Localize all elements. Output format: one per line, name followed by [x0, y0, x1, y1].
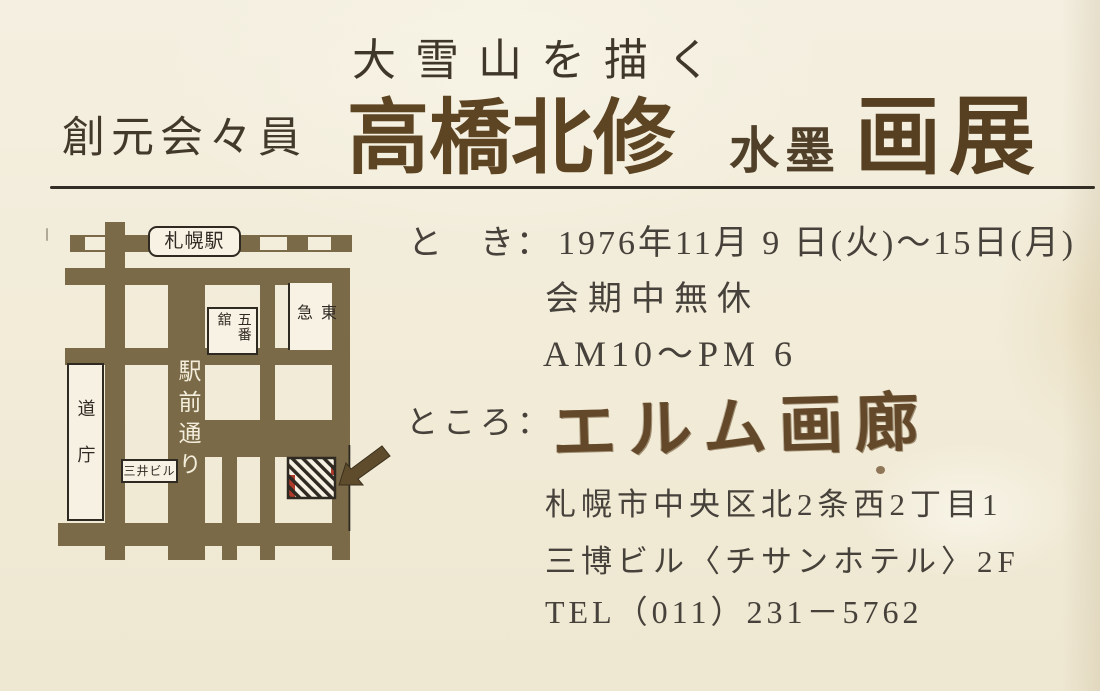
pref-office-label: 道庁 [73, 399, 99, 491]
exhibition-subtitle: 大雪山を描く [352, 24, 730, 88]
venue-address-line1: 札幌市中央区北2条西2丁目1 [545, 479, 1003, 524]
schedule-dates: 1976年11月 9 日(火)～15日(月) [558, 225, 1076, 262]
gallery-name-calligraphy: エルム画廊 [551, 371, 932, 474]
venue-phone: TEL（011）231－5762 [545, 587, 922, 633]
ekimae-street: 駅前通り [169, 359, 205, 499]
map-drawing [55, 213, 400, 563]
pref-office-building: 道庁 [67, 363, 104, 521]
station-label-box: 札幌駅 [148, 226, 241, 257]
tokyu-building: 東急 [288, 283, 332, 350]
medium-label: 水墨 [729, 126, 841, 176]
mitsui-building-label: 三井ビル [123, 464, 175, 478]
gobankan-building-label: 五番舘 [212, 312, 253, 346]
schedule-label: と き： [408, 225, 552, 262]
title-divider [50, 186, 1095, 189]
artist-name: 高橋北修 [347, 98, 675, 180]
station-label: 札幌駅 [164, 231, 224, 252]
schedule-hours: AM10～PM 6 [543, 325, 797, 377]
gallery-location-marker [288, 458, 335, 498]
artist-affiliation: 創元会々員 [62, 117, 307, 160]
tokyu-building-label: 東急 [290, 289, 338, 350]
exhibition-type: 画展 [855, 94, 1043, 180]
title-row: 創元会々員 高橋北修 水墨 画展 [62, 82, 1043, 180]
ekimae-street-label: 駅前通り [170, 359, 204, 483]
venue-label: ところ： [406, 397, 554, 443]
venue-address-line2: 三博ビル〈チサンホテル〉2F [545, 536, 1020, 581]
paper-background: 大雪山を描く 創元会々員 高橋北修 水墨 画展 と き：1976年11月 9 日… [0, 0, 1100, 691]
schedule-note: 会期中無休 [545, 271, 760, 320]
gobankan-building: 五番舘 [207, 307, 258, 355]
location-map: 札幌駅 五番舘 東急 道庁 三井ビル 駅前通り [55, 213, 400, 563]
scan-artifact [876, 466, 885, 474]
schedule-line: と き：1976年11月 9 日(火)～15日(月) [408, 215, 1076, 264]
scan-artifact [46, 228, 48, 241]
